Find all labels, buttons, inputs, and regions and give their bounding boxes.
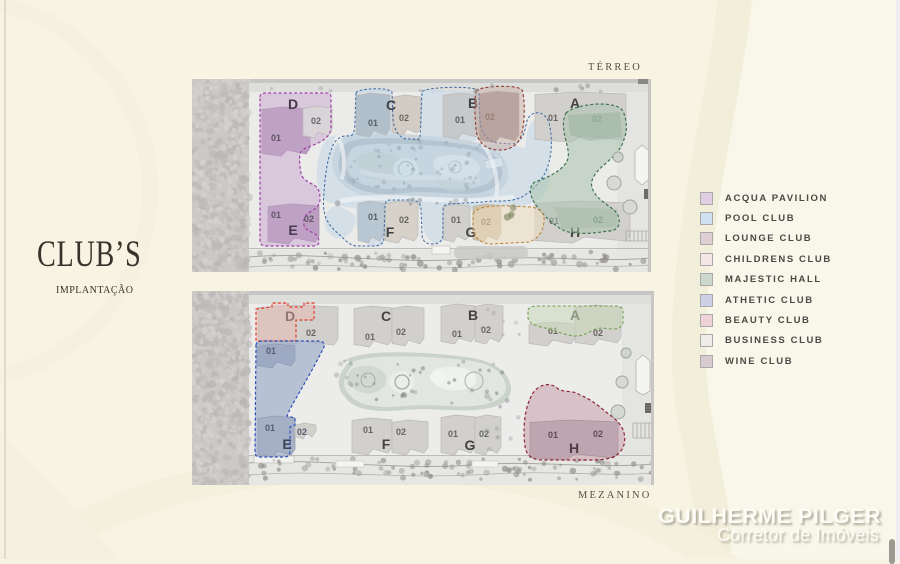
svg-text:01: 01	[455, 115, 465, 125]
svg-text:01: 01	[363, 425, 373, 435]
svg-text:E: E	[288, 222, 297, 238]
svg-text:F: F	[386, 224, 395, 240]
svg-text:02: 02	[306, 328, 316, 338]
svg-text:01: 01	[548, 430, 558, 440]
svg-text:F: F	[382, 436, 391, 452]
svg-text:01: 01	[265, 423, 275, 433]
svg-text:H: H	[569, 440, 579, 456]
svg-text:01: 01	[271, 133, 281, 143]
svg-text:01: 01	[548, 113, 558, 123]
svg-text:02: 02	[399, 113, 409, 123]
svg-text:G: G	[465, 437, 476, 453]
svg-text:01: 01	[266, 346, 276, 356]
svg-text:02: 02	[396, 427, 406, 437]
svg-text:B: B	[468, 307, 478, 323]
svg-text:02: 02	[304, 214, 314, 224]
svg-text:C: C	[386, 97, 396, 113]
svg-text:02: 02	[481, 325, 491, 335]
svg-text:02: 02	[311, 116, 321, 126]
svg-text:01: 01	[271, 210, 281, 220]
svg-text:D: D	[288, 96, 298, 112]
svg-text:C: C	[381, 308, 391, 324]
svg-text:01: 01	[452, 329, 462, 339]
svg-text:01: 01	[451, 215, 461, 225]
svg-text:02: 02	[396, 327, 406, 337]
svg-text:01: 01	[448, 429, 458, 439]
svg-text:02: 02	[593, 429, 603, 439]
svg-text:01: 01	[368, 118, 378, 128]
svg-text:02: 02	[399, 215, 409, 225]
svg-text:02: 02	[297, 427, 307, 437]
svg-text:01: 01	[368, 212, 378, 222]
svg-text:01: 01	[365, 332, 375, 342]
svg-text:E: E	[282, 436, 291, 452]
